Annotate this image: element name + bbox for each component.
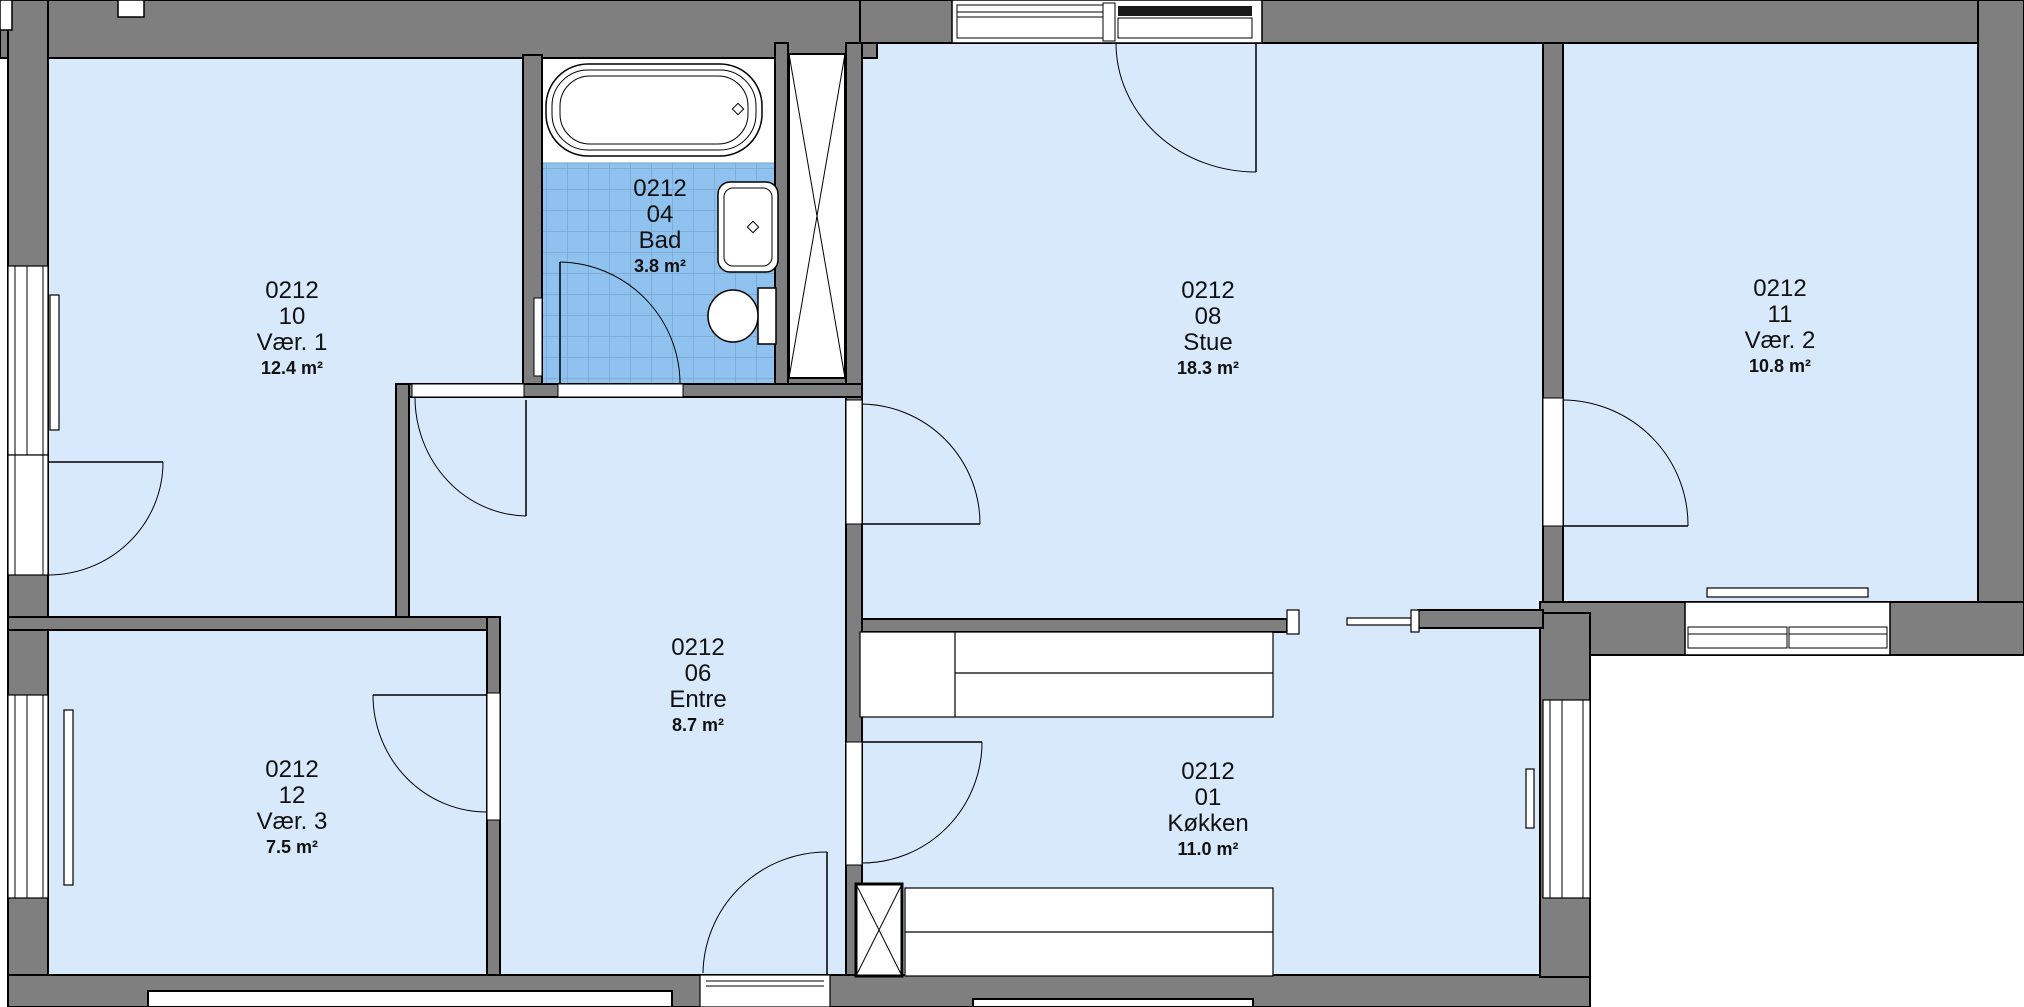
room-area: 12.4 m² [257,356,328,380]
room-label-koekken: 0212 01 Køkken 11.0 m² [1167,759,1248,861]
window-vaer1 [8,266,48,455]
room-unit: 0212 [1745,276,1816,302]
wall-kitchen-top [862,619,1287,632]
room-area: 8.7 m² [669,713,726,737]
room-name: Vær. 1 [257,330,328,356]
room-name: Vær. 2 [1745,328,1816,354]
room-number: 04 [633,202,686,228]
floorplan: 0212 10 Vær. 1 12.4 m² 0212 04 Bad 3.8 m… [0,0,2024,1007]
window-vaer3 [8,695,48,898]
balcony-strip-kitchen [973,999,1253,1007]
room-number: 01 [1167,785,1248,811]
room-name: Vær. 3 [257,809,328,835]
room-number: 10 [257,304,328,330]
bathtub [546,64,762,156]
room-label-vaer2: 0212 11 Vær. 2 10.8 m² [1745,276,1816,378]
room-name: Entre [669,687,726,713]
facade-joint-topleft [118,0,144,17]
room-area: 7.5 m² [257,835,328,859]
room-unit: 0212 [1167,759,1248,785]
room-label-bad: 0212 04 Bad 3.8 m² [633,176,686,278]
room-area: 10.8 m² [1745,354,1816,378]
vent-shaft-koekken [856,884,902,976]
room-area: 3.8 m² [633,254,686,278]
bathroom-sink [718,182,778,272]
toilet [708,288,776,344]
room-number: 12 [257,783,328,809]
room-unit: 0212 [257,278,328,304]
balcony-strip-left [148,991,672,1007]
room-number: 11 [1745,302,1816,328]
room-number: 06 [669,661,726,687]
wall-vaer1-vaer3 [8,617,500,630]
room-area: 11.0 m² [1167,837,1248,861]
room-unit: 0212 [1177,278,1239,304]
room-name: Stue [1177,330,1239,356]
room-name: Bad [633,228,686,254]
room-unit: 0212 [633,176,686,202]
radiator-koekken [1526,769,1534,828]
room-unit: 0212 [669,635,726,661]
wall-right [1978,0,2024,655]
room-name: Køkken [1167,811,1248,837]
wall-entre-left-stub [396,384,409,630]
room-label-vaer3: 0212 12 Vær. 3 7.5 m² [257,757,328,859]
facade-joint-corner [0,0,12,30]
wall-kitchen-top-east [1418,610,1543,628]
floor-areas [45,43,1978,975]
radiator-vaer2 [1707,588,1868,597]
room-label-entre: 0212 06 Entre 8.7 m² [669,635,726,737]
window-koekken [1543,700,1590,898]
radiator-vaer3 [64,710,73,885]
room-number: 08 [1177,304,1239,330]
room-unit: 0212 [257,757,328,783]
room-label-stue: 0212 08 Stue 18.3 m² [1177,278,1239,380]
vent-shaft-bad [789,54,845,378]
room-area: 18.3 m² [1177,356,1239,380]
bathroom-wall-fixture [534,298,542,376]
window-vaer2 [1685,602,1890,655]
kitchen-counter-bottom [905,888,1273,976]
kitchen-counter-top [860,632,1273,717]
radiator-vaer1 [50,295,59,430]
room-label-vaer1: 0212 10 Vær. 1 12.4 m² [257,278,328,380]
